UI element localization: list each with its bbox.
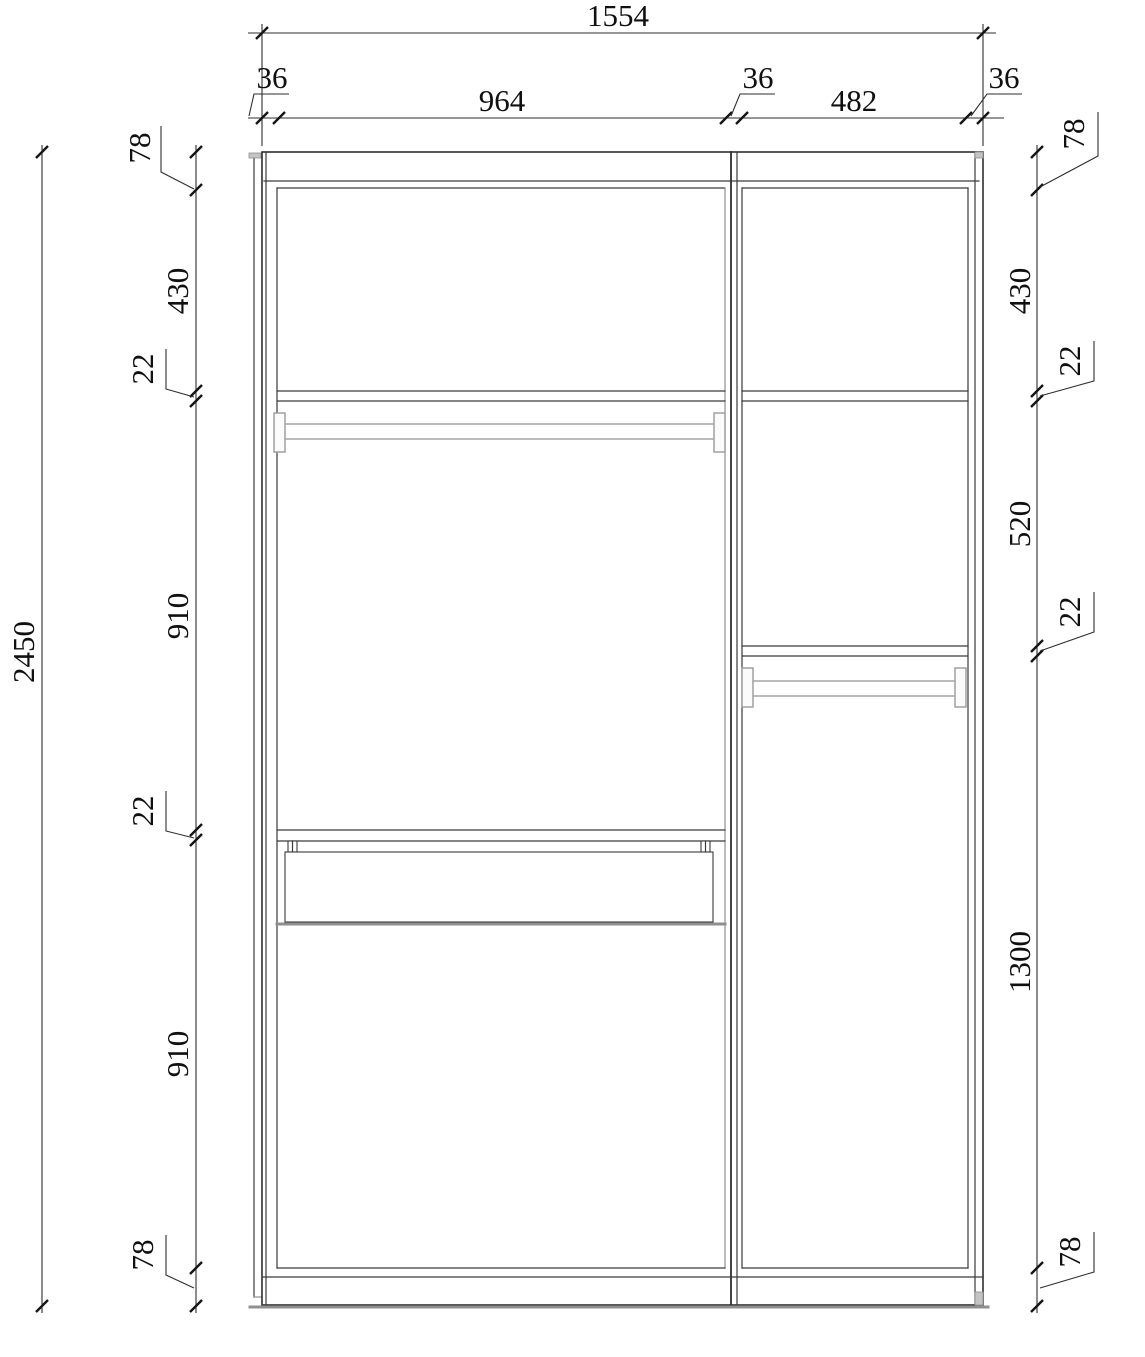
right-rod-bracket-right xyxy=(955,668,966,707)
leader-left-22-upper xyxy=(166,349,194,397)
dim-label-left-78-bottom: 78 xyxy=(125,1240,160,1271)
dim-label-right-520: 520 xyxy=(1002,501,1037,548)
technical-drawing-page: 1554 36 964 36 482 36 2450 78 430 22 910… xyxy=(0,0,1145,1357)
right-panel-top-cap xyxy=(975,152,983,158)
right-rod-bracket-left xyxy=(742,668,753,707)
dim-label-left-22-lower: 22 xyxy=(125,796,160,827)
dim-label-top-36-mid: 36 xyxy=(743,60,774,95)
dim-label-right-1300: 1300 xyxy=(1002,931,1037,993)
dim-label-left-430: 430 xyxy=(160,268,195,315)
right-panel-bottom-cap xyxy=(975,1292,983,1305)
carcass-outline xyxy=(262,152,983,1305)
dim-label-right-22-lower: 22 xyxy=(1052,597,1087,628)
dim-label-right-430: 430 xyxy=(1002,268,1037,315)
cabinet xyxy=(249,152,988,1307)
dim-label-right-78-top: 78 xyxy=(1056,119,1091,150)
left-rod-bracket-left xyxy=(274,413,285,452)
dim-label-top-482: 482 xyxy=(831,83,878,118)
dim-label-top-36-left: 36 xyxy=(257,60,288,95)
left-rod-bracket-right xyxy=(714,413,725,452)
dimension-top: 1554 36 964 36 482 36 xyxy=(248,0,1022,146)
leader-left-78-bottom xyxy=(166,1235,194,1288)
wardrobe-elevation-drawing: 1554 36 964 36 482 36 2450 78 430 22 910… xyxy=(0,0,1145,1357)
dim-label-left-78-top: 78 xyxy=(122,133,157,164)
dim-label-left-910-upper: 910 xyxy=(160,593,195,640)
dim-label-right-22-upper: 22 xyxy=(1052,346,1087,377)
dimension-right-chain: 78 430 22 520 22 1300 78 xyxy=(1002,112,1098,1313)
dimension-left-chain: 78 430 22 910 22 910 78 xyxy=(122,126,202,1313)
leader-left-78-top xyxy=(161,126,194,189)
drawer-front xyxy=(285,852,713,922)
dim-label-top-36-right: 36 xyxy=(989,60,1020,95)
dim-label-top-964: 964 xyxy=(479,83,526,118)
leader-left-22-lower xyxy=(166,791,194,838)
dimension-left-overall: 2450 xyxy=(6,145,48,1313)
dim-label-right-78-bottom: 78 xyxy=(1052,1237,1087,1268)
dim-label-left-22-upper: 22 xyxy=(125,354,160,385)
dim-label-top-overall: 1554 xyxy=(587,0,650,33)
dim-label-left-910-lower: 910 xyxy=(160,1031,195,1078)
left-offset-top-cap xyxy=(249,153,261,158)
dim-label-left-overall: 2450 xyxy=(6,621,41,683)
leader-top-36-mid xyxy=(731,94,775,116)
leader-top-36-right xyxy=(971,94,1022,116)
